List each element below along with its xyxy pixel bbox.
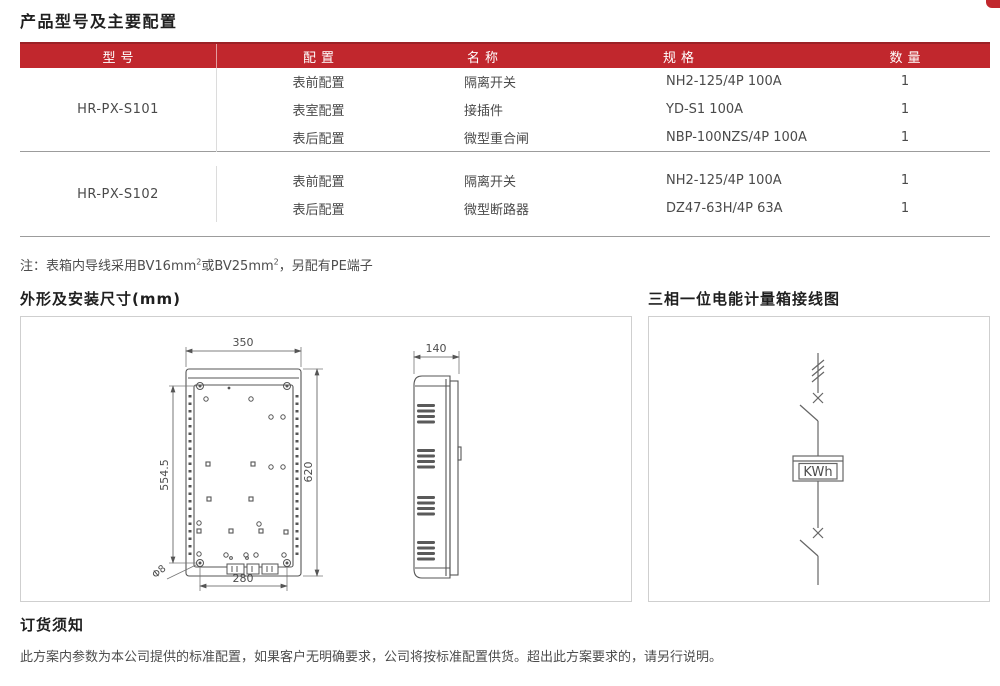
model-cell: HR-PX-S101 xyxy=(20,68,217,152)
name-cell: 微型重合闸 xyxy=(420,124,640,152)
breaker-contact-lower xyxy=(813,528,823,538)
isolator-switch-upper xyxy=(800,405,818,421)
corner-screw-holes xyxy=(197,383,291,567)
ordering-notes-title: 订货须知 xyxy=(20,614,84,635)
dim-label-350: 350 xyxy=(233,336,254,349)
page-title: 产品型号及主要配置 xyxy=(20,8,178,32)
column-header-name: 名称 xyxy=(420,44,640,68)
table-note: 注：表箱内导线采用BV16mm2或BV25mm2，另配有PE端子 xyxy=(20,255,373,274)
qty-cell: 1 xyxy=(855,96,990,124)
isolator-contact-upper xyxy=(813,393,823,403)
name-cell: 隔离开关 xyxy=(420,68,640,96)
column-header-config: 配置 xyxy=(217,44,420,68)
catalog-page: 产品型号及主要配置 型号 配置 名称 规格 数量 HR-PX-S101 表前配置… xyxy=(0,0,1000,686)
model-cell: HR-PX-S102 xyxy=(20,166,217,222)
dimension-panel: 350 620 554.5 280 Φ8 xyxy=(20,316,632,602)
column-header-model: 型号 xyxy=(20,44,217,68)
ordering-notes-text: 此方案内参数为本公司提供的标准配置，如果客户无明确要求，公司将按标准配置供货。超… xyxy=(20,646,722,665)
dim-label-554: 554.5 xyxy=(158,459,171,491)
config-cell: 表前配置 xyxy=(217,166,420,194)
name-cell: 接插件 xyxy=(420,96,640,124)
dim-label-280: 280 xyxy=(233,572,254,585)
name-cell: 隔离开关 xyxy=(420,166,640,194)
column-header-qty: 数量 xyxy=(855,44,990,68)
name-cell: 微型断路器 xyxy=(420,194,640,222)
wiring-section-title: 三相一位电能计量箱接线图 xyxy=(648,288,840,309)
note-text: 注：表箱内导线采用BV16mm xyxy=(20,259,196,274)
dim-label-hole-dia: Φ8 xyxy=(150,563,168,581)
page-corner-accent xyxy=(986,0,1000,8)
spec-cell: NBP-100NZS/4P 100A xyxy=(640,124,855,152)
dim-350 xyxy=(186,347,301,367)
config-cell: 表前配置 xyxy=(217,68,420,96)
dim-554 xyxy=(169,386,196,563)
product-spec-table: 型号 配置 名称 规格 数量 HR-PX-S101 表前配置 隔离开关 NH2-… xyxy=(20,42,990,237)
vent-slots xyxy=(417,404,435,561)
spec-cell: YD-S1 100A xyxy=(640,96,855,124)
qty-cell: 1 xyxy=(855,124,990,152)
mounting-holes xyxy=(197,397,288,560)
knockout-strips xyxy=(190,395,297,559)
column-header-spec: 规格 xyxy=(640,44,855,68)
dimensions-section-title: 外形及安装尺寸(mm) xyxy=(20,288,181,309)
config-cell: 表后配置 xyxy=(217,194,420,222)
wiring-panel: KWh xyxy=(648,316,990,602)
spec-cell: NH2-125/4P 100A xyxy=(640,68,855,96)
breaker-switch-lower xyxy=(800,540,818,556)
dimension-drawing: 350 620 554.5 280 Φ8 xyxy=(21,317,631,601)
wiring-diagram: KWh xyxy=(649,317,989,601)
hole-dia-leader xyxy=(167,564,198,579)
config-cell: 表后配置 xyxy=(217,124,420,152)
spec-cell: DZ47-63H/4P 63A xyxy=(640,194,855,222)
qty-cell: 1 xyxy=(855,68,990,96)
note-text: ，另配有PE端子 xyxy=(279,259,373,274)
dim-label-620: 620 xyxy=(302,462,315,483)
meter-label: KWh xyxy=(803,465,832,480)
table-group-hr-px-s102: HR-PX-S102 表前配置 隔离开关 NH2-125/4P 100A 1 表… xyxy=(20,152,990,237)
spec-cell: NH2-125/4P 100A xyxy=(640,166,855,194)
table-group-hr-px-s101: HR-PX-S101 表前配置 隔离开关 NH2-125/4P 100A 1 表… xyxy=(20,68,990,152)
front-view-outline xyxy=(186,369,301,576)
config-cell: 表室配置 xyxy=(217,96,420,124)
qty-cell: 1 xyxy=(855,194,990,222)
qty-cell: 1 xyxy=(855,166,990,194)
table-header-row: 型号 配置 名称 规格 数量 xyxy=(20,42,990,68)
note-text: 或BV25mm xyxy=(201,259,273,274)
dim-label-140: 140 xyxy=(426,342,447,355)
